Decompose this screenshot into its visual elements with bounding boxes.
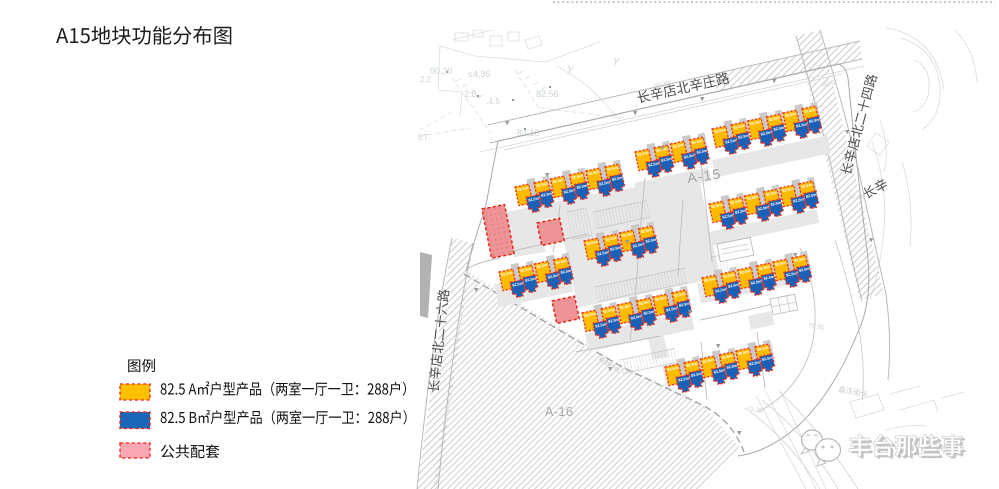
svg-text:≤4,36: ≤4,36 (468, 69, 490, 79)
svg-text:A-16: A-16 (545, 405, 573, 419)
svg-text:1,5: 1,5 (489, 97, 501, 106)
svg-text:82,56: 82,56 (536, 89, 559, 99)
svg-text:Y: Y (611, 56, 620, 68)
svg-text:·78,91: ·78,91 (806, 322, 826, 332)
svg-text:27,08: 27,08 (848, 194, 865, 201)
svg-text:A-15: A-15 (686, 165, 722, 186)
svg-text:2,8: 2,8 (464, 89, 477, 99)
svg-text:2,2: 2,2 (420, 75, 432, 84)
svg-text:Y: Y (565, 64, 574, 76)
svg-text:·79,20: ·79,20 (744, 405, 764, 415)
svg-text:90,30: 90,30 (430, 66, 453, 76)
svg-text:ET.: ET. (418, 133, 430, 142)
